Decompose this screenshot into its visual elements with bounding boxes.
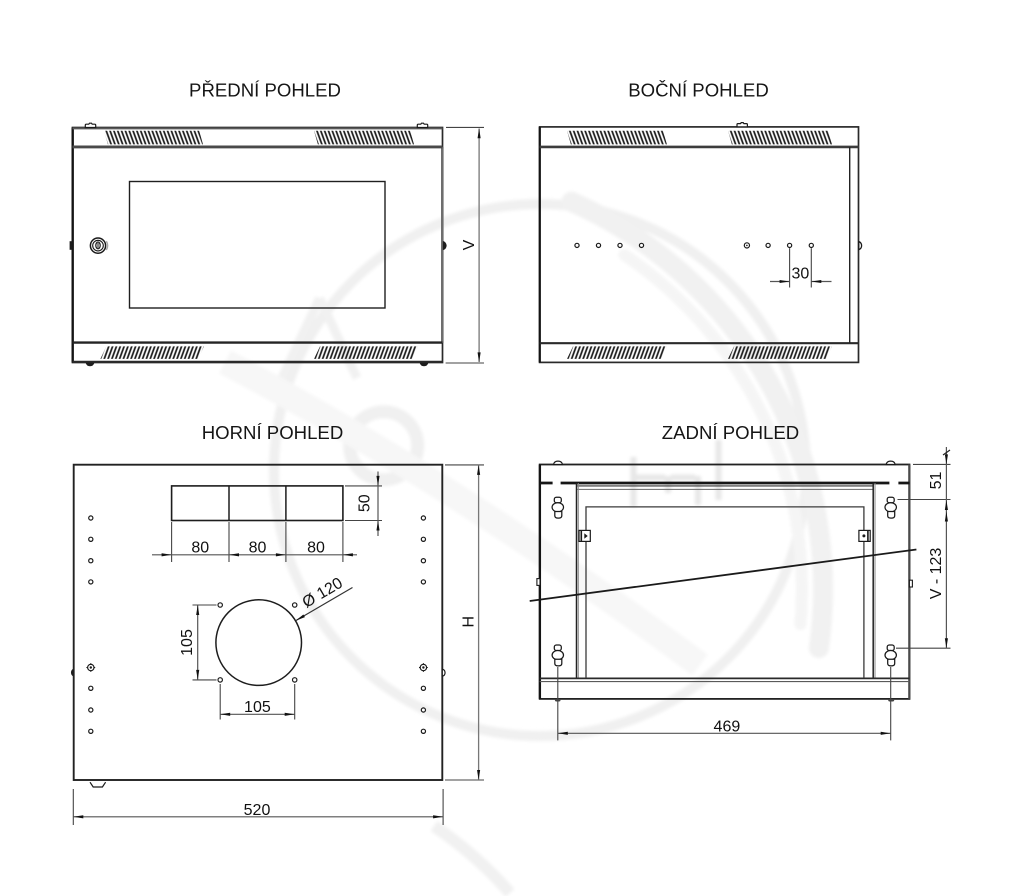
svg-text:30: 30 (792, 265, 810, 282)
svg-text:80: 80 (307, 540, 325, 557)
svg-text:80: 80 (191, 540, 209, 557)
svg-text:520: 520 (244, 802, 271, 819)
svg-text:HORNÍ POHLED: HORNÍ POHLED (202, 422, 344, 443)
svg-text:H: H (460, 616, 477, 628)
svg-text:51: 51 (928, 472, 945, 490)
svg-text:105: 105 (179, 629, 196, 656)
svg-text:BOČNÍ POHLED: BOČNÍ POHLED (628, 79, 769, 100)
svg-text:ZADNÍ POHLED: ZADNÍ POHLED (662, 422, 799, 443)
svg-text:469: 469 (714, 718, 741, 735)
svg-text:V - 123: V - 123 (928, 548, 945, 600)
svg-text:80: 80 (249, 540, 267, 557)
svg-text:Ø 120: Ø 120 (300, 575, 346, 612)
svg-text:50: 50 (357, 494, 374, 512)
svg-text:PŘEDNÍ POHLED: PŘEDNÍ POHLED (189, 79, 341, 100)
svg-text:V: V (461, 239, 478, 250)
svg-text:105: 105 (244, 699, 271, 716)
